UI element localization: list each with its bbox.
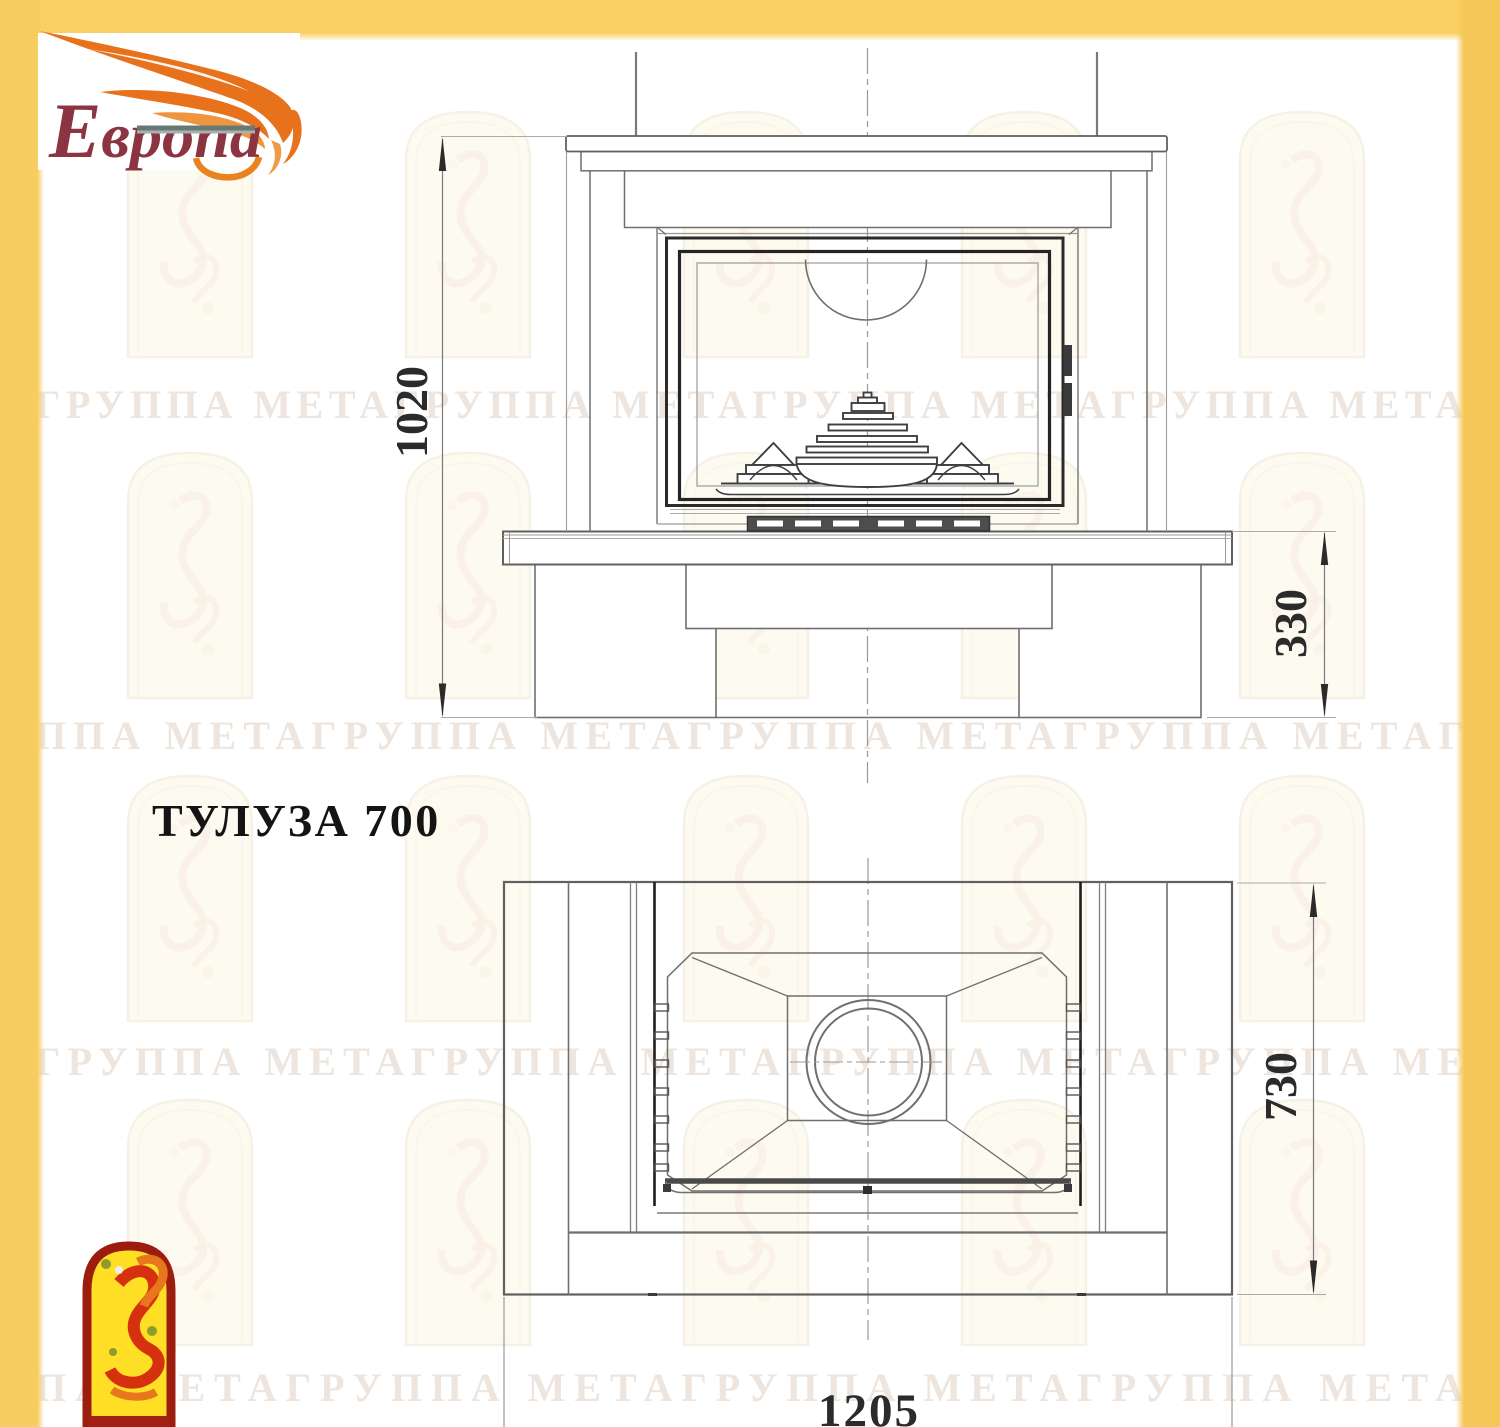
svg-text:1205: 1205	[818, 1385, 920, 1427]
svg-text:330: 330	[1265, 589, 1316, 658]
svg-text:ГРУППА МЕТАГРУППА МЕТАГРУППА М: ГРУППА МЕТАГРУППА МЕТАГРУППА МЕТАГРУППА …	[35, 1039, 1464, 1084]
svg-text:ППА МЕТАГРУППА МЕТАГРУППА МЕТА: ППА МЕТАГРУППА МЕТАГРУППА МЕТАГРУППА МЕТ…	[35, 713, 1464, 758]
svg-text:ПА МЕТАГРУППА МЕТАГРУППА МЕТАГ: ПА МЕТАГРУППА МЕТАГРУППА МЕТАГРУППА МЕТА	[35, 1365, 1464, 1410]
svg-text:1020: 1020	[386, 366, 437, 458]
svg-text:ГРУППА МЕТАГРУППА МЕТАГРУППА М: ГРУППА МЕТАГРУППА МЕТАГРУППА МЕТАГРУППА …	[35, 382, 1464, 427]
svg-text:ТУЛУЗА 700: ТУЛУЗА 700	[152, 795, 441, 846]
svg-text:730: 730	[1255, 1052, 1306, 1121]
